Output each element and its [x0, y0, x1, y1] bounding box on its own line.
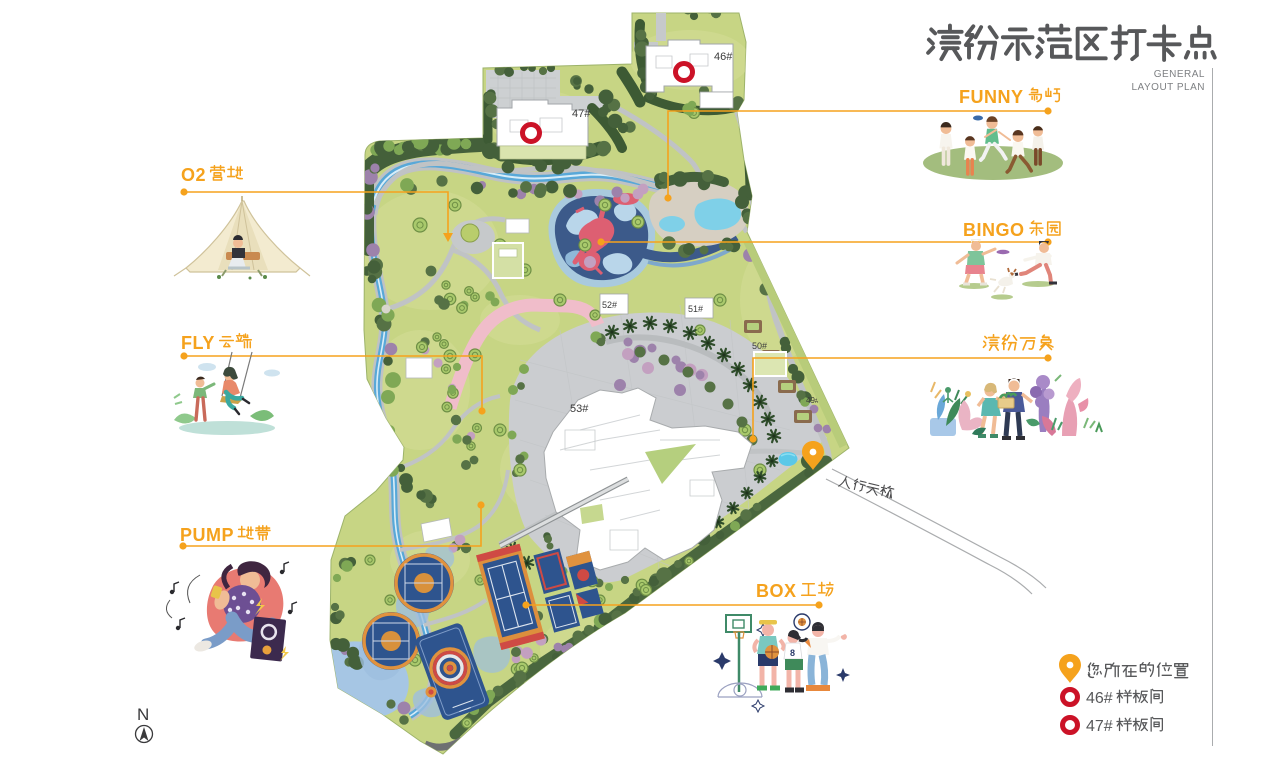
- svg-text:8: 8: [790, 648, 795, 658]
- svg-text:GENERAL: GENERAL: [1154, 69, 1205, 80]
- svg-text:FUNNY: FUNNY: [959, 87, 1024, 107]
- svg-text:LAYOUT PLAN: LAYOUT PLAN: [1132, 82, 1206, 93]
- svg-text:47#: 47#: [572, 108, 591, 120]
- svg-text:FLY: FLY: [181, 333, 215, 353]
- svg-text:51#: 51#: [688, 304, 703, 314]
- svg-text:46#: 46#: [714, 51, 733, 63]
- svg-text:53#: 53#: [570, 403, 589, 415]
- svg-text:PUMP: PUMP: [180, 525, 234, 545]
- svg-text:BOX: BOX: [756, 581, 797, 601]
- svg-text:46#: 46#: [1086, 690, 1113, 707]
- svg-text:50#: 50#: [752, 341, 767, 351]
- svg-text:52#: 52#: [602, 300, 617, 310]
- svg-text:O2: O2: [181, 165, 206, 185]
- svg-text:47#: 47#: [1086, 718, 1113, 735]
- svg-text:N: N: [137, 705, 149, 724]
- svg-text:BINGO: BINGO: [963, 220, 1025, 240]
